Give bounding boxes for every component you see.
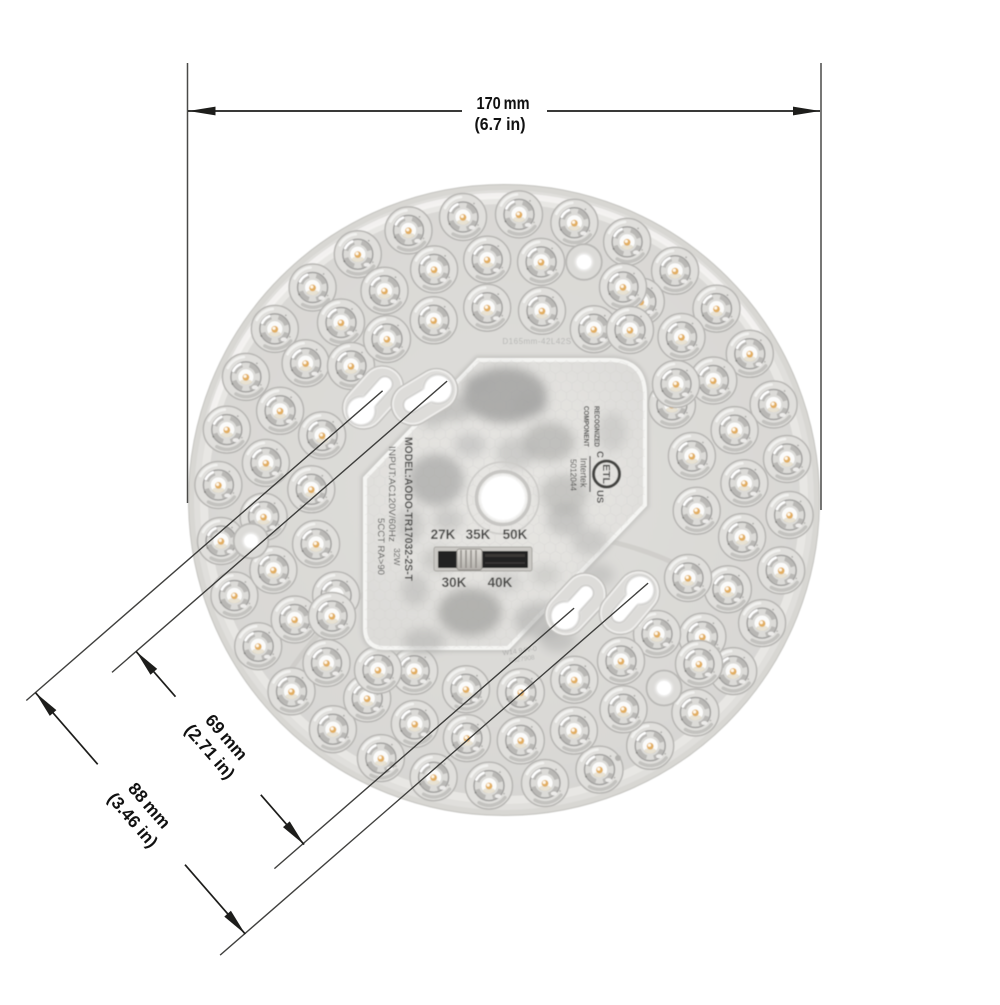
svg-text:32W: 32W bbox=[392, 548, 402, 565]
svg-text:MODEL:AODO-TR17032-2S-T: MODEL:AODO-TR17032-2S-T bbox=[402, 437, 414, 581]
svg-text:(6.7 in): (6.7 in) bbox=[475, 114, 526, 134]
svg-text:US: US bbox=[594, 490, 605, 503]
svg-text:27K: 27K bbox=[431, 527, 456, 542]
svg-text:ETL: ETL bbox=[600, 464, 612, 484]
svg-text:40K: 40K bbox=[488, 575, 513, 590]
svg-text:35K: 35K bbox=[466, 527, 491, 542]
svg-text:30K: 30K bbox=[442, 575, 467, 590]
svg-text:C: C bbox=[594, 451, 605, 458]
svg-text:5CCT RA>90: 5CCT RA>90 bbox=[376, 518, 386, 575]
svg-text:170 mm: 170 mm bbox=[477, 93, 530, 113]
svg-text:D165mm-42L42S: D165mm-42L42S bbox=[502, 337, 571, 346]
svg-text:COMPONENT: COMPONENT bbox=[582, 406, 591, 448]
svg-text:5012044: 5012044 bbox=[569, 459, 578, 491]
svg-text:RECOGNIZED: RECOGNIZED bbox=[593, 406, 602, 447]
svg-text:50K: 50K bbox=[503, 527, 528, 542]
svg-text:INPUT:AC120V/60Hz: INPUT:AC120V/60Hz bbox=[387, 446, 397, 543]
svg-text:Intertek: Intertek bbox=[579, 458, 589, 488]
